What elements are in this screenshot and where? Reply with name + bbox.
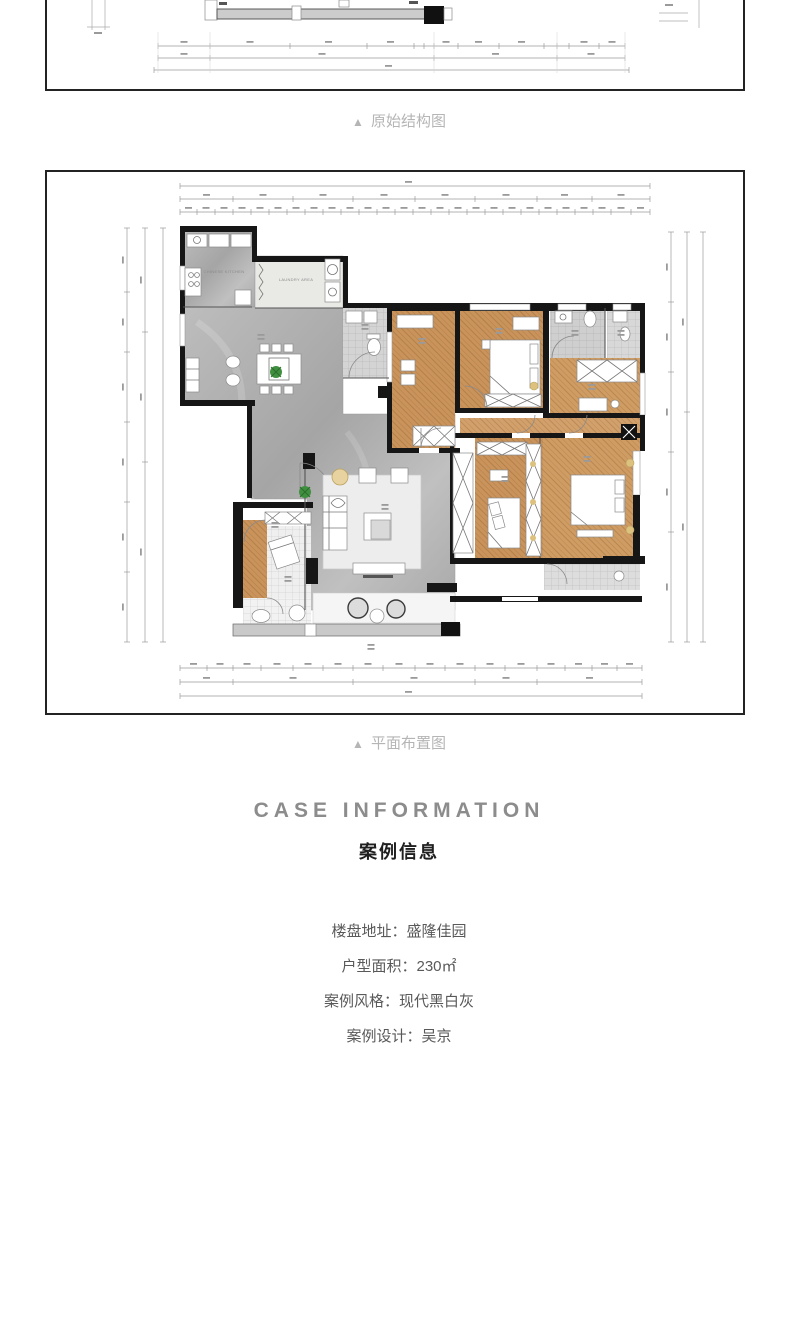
structure-drawing: [47, 0, 743, 89]
bottom-whitespace: [0, 1054, 798, 1325]
field-value: 230㎡: [416, 958, 456, 975]
case-info-list: 楼盘地址：盛隆佳园 户型面积：230㎡ 案例风格：现代黑白灰 案例设计：吴京: [0, 914, 798, 1054]
field-value: 吴京: [422, 1028, 452, 1045]
structure-caption: ▲ 原始结构图: [0, 113, 798, 131]
floor-plan-drawing: CHINESE KITCHEN LAUNDRY AREA: [47, 172, 743, 713]
laundry-label: LAUNDRY AREA: [279, 277, 313, 282]
kitchen-label: CHINESE KITCHEN: [204, 269, 245, 274]
case-information-heading-en: CASE INFORMATION: [0, 799, 798, 823]
field-label: 案例风格：: [324, 993, 399, 1010]
field-label: 户型面积：: [341, 958, 416, 975]
field-label: 楼盘地址：: [331, 923, 406, 940]
caption-triangle-icon: ▲: [352, 113, 364, 131]
field-value: 现代黑白灰: [399, 993, 474, 1010]
case-info-row-designer: 案例设计：吴京: [0, 1019, 798, 1054]
floor-plan-panel: CHINESE KITCHEN LAUNDRY AREA: [45, 170, 745, 715]
plan-caption: ▲ 平面布置图: [0, 735, 798, 753]
caption-triangle-icon: ▲: [352, 735, 364, 753]
case-info-row-address: 楼盘地址：盛隆佳园: [0, 914, 798, 949]
case-info-row-style: 案例风格：现代黑白灰: [0, 984, 798, 1019]
structure-drawing-panel: [45, 0, 745, 91]
case-information-heading-zh: 案例信息: [0, 838, 798, 864]
article-page: { "panels": { "structure": { "caption_ma…: [0, 0, 798, 1325]
plan-caption-text: 平面布置图: [371, 735, 446, 753]
structure-caption-text: 原始结构图: [371, 113, 446, 131]
field-value: 盛隆佳园: [407, 923, 467, 940]
case-info-row-area: 户型面积：230㎡: [0, 949, 798, 984]
field-label: 案例设计：: [346, 1028, 421, 1045]
